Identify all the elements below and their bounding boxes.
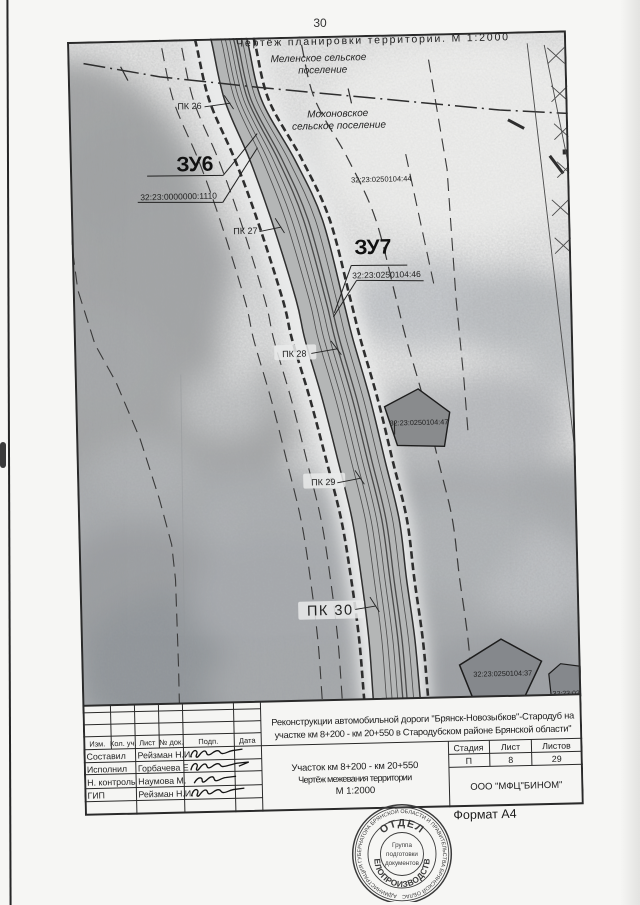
svg-text:ПК 27: ПК 27 [233, 226, 257, 237]
svg-text:Рейзман Н.И.: Рейзман Н.И. [138, 788, 193, 799]
svg-text:ПК 30: ПК 30 [307, 603, 354, 620]
svg-text:Исполнил: Исполнил [87, 764, 127, 775]
svg-text:Н. контроль: Н. контроль [87, 777, 136, 788]
svg-text:сельское поселение: сельское поселение [292, 120, 387, 133]
svg-text:8: 8 [508, 755, 513, 765]
svg-text:Дата: Дата [239, 736, 257, 745]
svg-text:ОТДЕЛ: ОТДЕЛ [378, 817, 427, 836]
svg-text:Изм.: Изм. [89, 739, 105, 748]
svg-text:Стадия: Стадия [453, 743, 483, 754]
svg-text:Лист: Лист [501, 742, 520, 752]
svg-text:Группа: Группа [392, 842, 412, 849]
svg-text:Наумова М.: Наумова М. [138, 775, 186, 786]
svg-text:29: 29 [552, 754, 562, 764]
svg-text:32:23:0000000:1110: 32:23:0000000:1110 [140, 191, 217, 203]
svg-text:Кол. уч.: Кол. уч. [110, 739, 137, 749]
svg-text:32:23:0250104:37: 32:23:0250104:37 [473, 668, 532, 678]
svg-text:ПК 26: ПК 26 [177, 101, 201, 112]
svg-text:ООО "МФЦ"БИНОМ": ООО "МФЦ"БИНОМ" [470, 780, 562, 793]
svg-text:ПК 28: ПК 28 [282, 349, 306, 360]
svg-text:Лист: Лист [139, 738, 156, 747]
svg-text:Составил: Составил [86, 751, 125, 762]
svg-text:поселение: поселение [298, 64, 348, 76]
svg-text:32:23:0250104:46: 32:23:0250104:46 [352, 269, 421, 281]
svg-text:М 1:2000: М 1:2000 [336, 785, 376, 797]
svg-text:Горбачева Е: Горбачева Е [138, 762, 189, 773]
svg-text:ЗУ6: ЗУ6 [176, 153, 214, 177]
svg-text:подготовки: подготовки [386, 851, 418, 858]
svg-text:ПК 29: ПК 29 [311, 477, 335, 488]
svg-text:32:23:0250104:44: 32:23:0250104:44 [351, 174, 412, 184]
svg-text:№ док.: № док. [159, 737, 183, 747]
svg-text:Рейзман Н.И.: Рейзман Н.И. [137, 749, 192, 760]
svg-text:ЗУ7: ЗУ7 [354, 236, 392, 260]
svg-text:32:23:0250104:47: 32:23:0250104:47 [389, 417, 448, 427]
svg-text:Формат А4: Формат А4 [453, 807, 517, 822]
svg-text:Мохоновское: Мохоновское [307, 108, 369, 120]
svg-text:ГИП: ГИП [87, 790, 105, 800]
svg-text:документов: документов [385, 860, 420, 867]
svg-text:П: П [466, 756, 473, 766]
svg-text:Листов: Листов [542, 740, 571, 751]
svg-text:Меленское сельское: Меленское сельское [270, 52, 367, 65]
svg-text:Подп.: Подп. [198, 737, 218, 746]
